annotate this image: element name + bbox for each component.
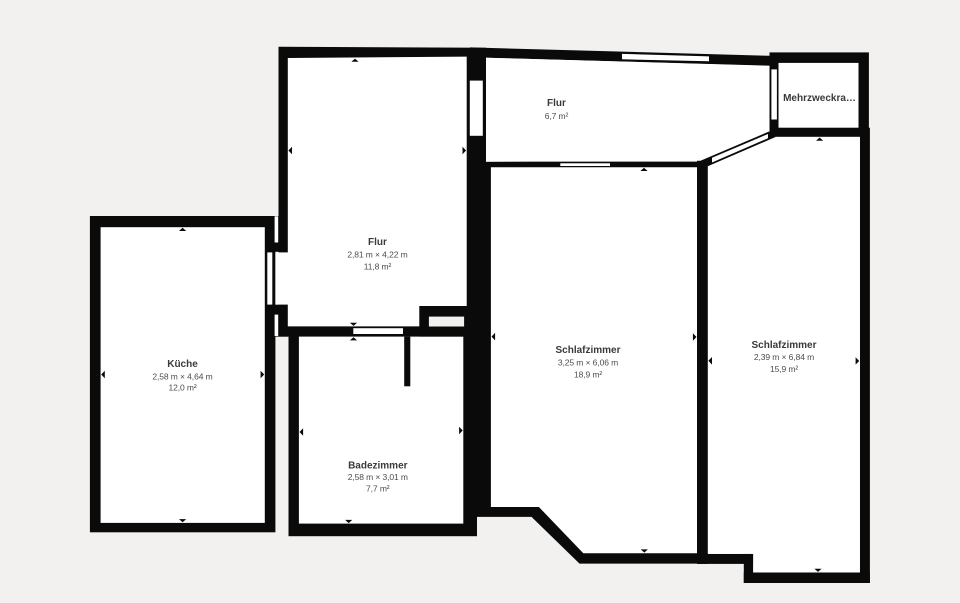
svg-text:15,9 m²: 15,9 m² <box>770 364 798 374</box>
svg-text:Schlafzimmer: Schlafzimmer <box>751 340 816 351</box>
svg-text:2,81 m × 4,22 m: 2,81 m × 4,22 m <box>347 249 407 259</box>
svg-text:Küche: Küche <box>167 359 198 370</box>
svg-text:3,25 m × 6,06 m: 3,25 m × 6,06 m <box>558 357 618 367</box>
svg-text:11,8 m²: 11,8 m² <box>364 261 392 271</box>
svg-text:7,7 m²: 7,7 m² <box>366 484 390 494</box>
svg-text:Flur: Flur <box>547 98 566 109</box>
svg-text:Badezimmer: Badezimmer <box>348 460 408 471</box>
svg-text:18,9 m²: 18,9 m² <box>574 369 602 379</box>
svg-text:2,39 m × 6,84 m: 2,39 m × 6,84 m <box>754 352 814 362</box>
svg-text:Mehrzweckra…: Mehrzweckra… <box>783 93 856 104</box>
svg-text:12,0 m²: 12,0 m² <box>168 383 196 393</box>
svg-text:2,58 m × 3,01 m: 2,58 m × 3,01 m <box>348 472 408 482</box>
svg-text:Flur: Flur <box>368 237 387 248</box>
svg-text:6,7 m²: 6,7 m² <box>545 111 569 121</box>
svg-text:Schlafzimmer: Schlafzimmer <box>555 345 620 356</box>
svg-text:2,58 m × 4,64 m: 2,58 m × 4,64 m <box>152 371 212 381</box>
